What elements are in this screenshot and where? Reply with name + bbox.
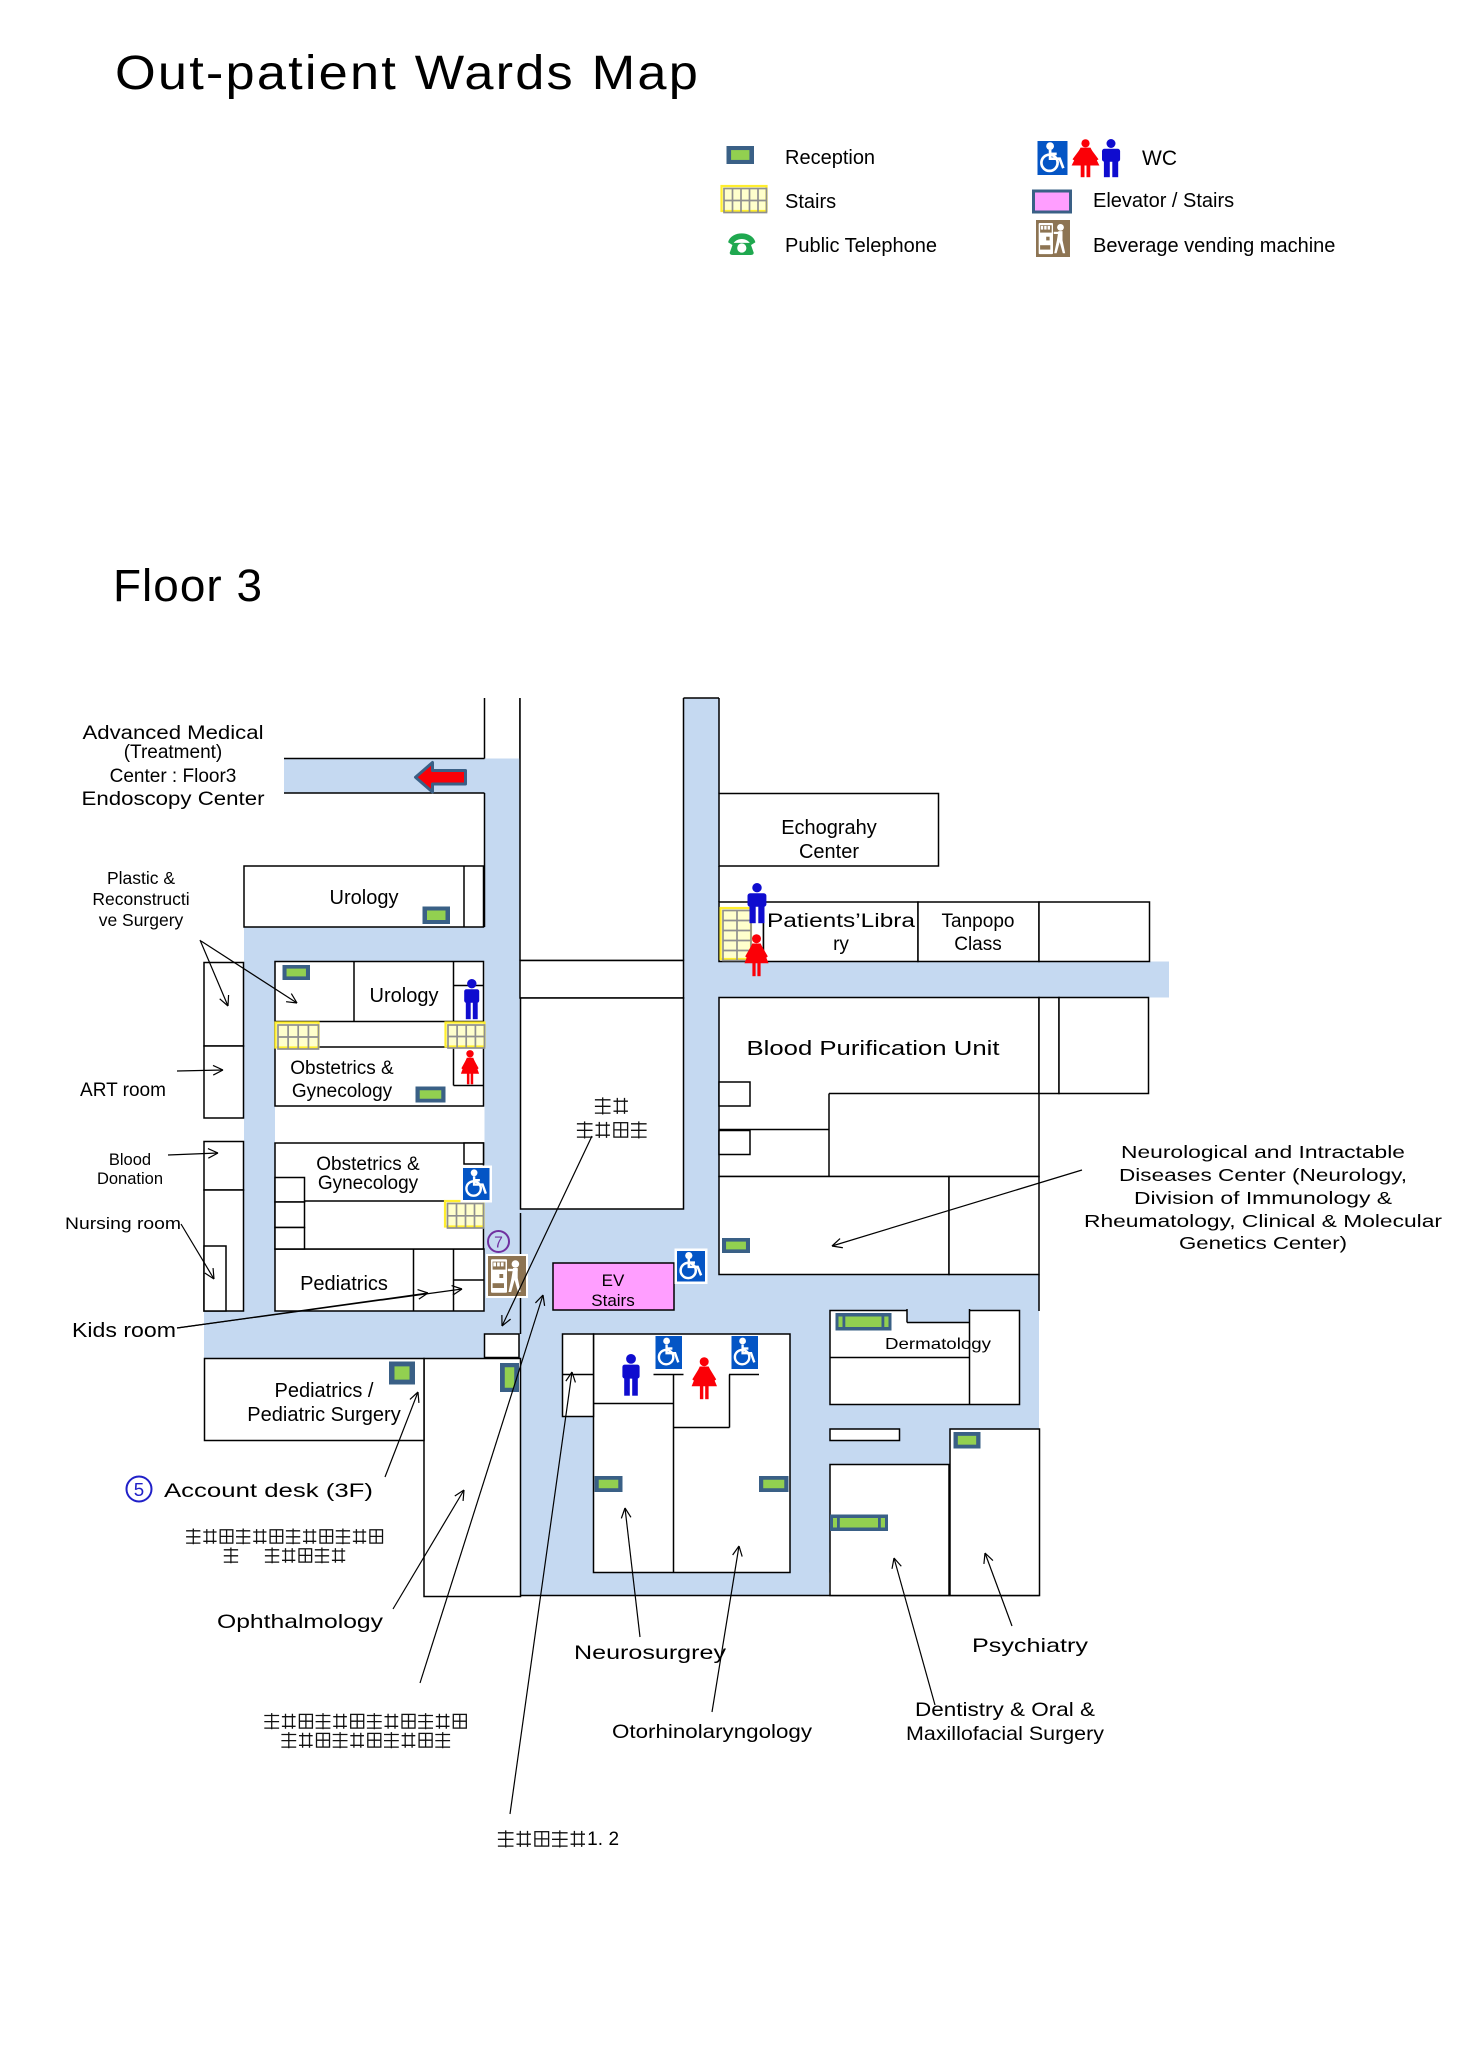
svg-text:Dermatology: Dermatology bbox=[885, 1336, 991, 1353]
svg-text:Endoscopy Center: Endoscopy Center bbox=[82, 789, 266, 810]
svg-text:Out-patient Wards Map: Out-patient Wards Map bbox=[115, 47, 700, 100]
svg-text:Ophthalmology: Ophthalmology bbox=[217, 1611, 383, 1633]
svg-text:Reconstructi: Reconstructi bbox=[92, 889, 189, 909]
svg-text:Urology: Urology bbox=[370, 985, 439, 1007]
svg-text:Rheumatology, Clinical & Molec: Rheumatology, Clinical & Molecular bbox=[1084, 1211, 1442, 1231]
svg-text:Division of Immunology &: Division of Immunology & bbox=[1134, 1188, 1392, 1208]
svg-text:Advanced Medical: Advanced Medical bbox=[83, 723, 264, 744]
svg-text:Pediatrics /: Pediatrics / bbox=[275, 1380, 374, 1402]
svg-text:WC: WC bbox=[1142, 147, 1177, 170]
svg-text:Nursing room: Nursing room bbox=[65, 1214, 181, 1233]
svg-text:Psychiatry: Psychiatry bbox=[972, 1635, 1088, 1657]
svg-text:.: . bbox=[598, 1829, 603, 1850]
svg-text:Genetics Center): Genetics Center) bbox=[1179, 1233, 1347, 1253]
svg-text:Dentistry & Oral &: Dentistry & Oral & bbox=[915, 1699, 1095, 1721]
svg-text:Echograhy: Echograhy bbox=[781, 817, 877, 839]
svg-text:Center : Floor3: Center : Floor3 bbox=[110, 766, 237, 787]
svg-text:Stairs: Stairs bbox=[785, 191, 836, 213]
svg-text:Pediatric Surgery: Pediatric Surgery bbox=[247, 1404, 400, 1426]
svg-text:Kids room: Kids room bbox=[72, 1320, 176, 1342]
svg-text:5: 5 bbox=[134, 1479, 144, 1500]
svg-text:Elevator / Stairs: Elevator / Stairs bbox=[1093, 190, 1234, 212]
svg-text:Donation: Donation bbox=[97, 1170, 163, 1188]
svg-text:Maxillofacial Surgery: Maxillofacial Surgery bbox=[906, 1723, 1104, 1745]
svg-text:(Treatment): (Treatment) bbox=[124, 742, 223, 763]
svg-text:Diseases Center (Neurology,: Diseases Center (Neurology, bbox=[1119, 1165, 1407, 1185]
svg-text:Urology: Urology bbox=[330, 887, 399, 909]
svg-text:Tanpopo: Tanpopo bbox=[942, 911, 1015, 932]
svg-text:Plastic &: Plastic & bbox=[107, 868, 175, 888]
svg-text:Neurosurgrey: Neurosurgrey bbox=[574, 1642, 726, 1664]
svg-text:Stairs: Stairs bbox=[591, 1291, 634, 1310]
svg-text:1: 1 bbox=[587, 1829, 598, 1850]
svg-text:Class: Class bbox=[954, 934, 1002, 955]
svg-text:ry: ry bbox=[833, 934, 849, 955]
svg-text:2: 2 bbox=[608, 1829, 619, 1850]
svg-text:Blood: Blood bbox=[109, 1151, 151, 1169]
svg-text:Obstetrics &: Obstetrics & bbox=[290, 1058, 394, 1079]
svg-text:ve Surgery: ve Surgery bbox=[99, 910, 184, 930]
svg-text:EV: EV bbox=[602, 1271, 625, 1290]
svg-text:Gynecology: Gynecology bbox=[318, 1173, 419, 1194]
svg-text:Public Telephone: Public Telephone bbox=[785, 235, 937, 257]
svg-text:Floor 3: Floor 3 bbox=[113, 560, 263, 611]
svg-text:Beverage vending machine: Beverage vending machine bbox=[1093, 235, 1335, 257]
svg-text:Patients’Libra: Patients’Libra bbox=[767, 911, 916, 932]
svg-text:Obstetrics &: Obstetrics & bbox=[316, 1154, 420, 1175]
svg-text:Pediatrics: Pediatrics bbox=[300, 1273, 388, 1295]
svg-text:Blood Purification Unit: Blood Purification Unit bbox=[747, 1038, 1001, 1060]
svg-text:Reception: Reception bbox=[785, 147, 875, 169]
svg-text:Otorhinolaryngology: Otorhinolaryngology bbox=[612, 1721, 812, 1743]
svg-text:ART room: ART room bbox=[80, 1080, 166, 1101]
svg-text:7: 7 bbox=[494, 1234, 503, 1251]
svg-text:Gynecology: Gynecology bbox=[292, 1081, 393, 1102]
svg-text:Center: Center bbox=[799, 841, 859, 863]
svg-text:Account desk (3F): Account desk (3F) bbox=[164, 1480, 373, 1502]
svg-text:Neurological and Intractable: Neurological and Intractable bbox=[1121, 1142, 1405, 1162]
